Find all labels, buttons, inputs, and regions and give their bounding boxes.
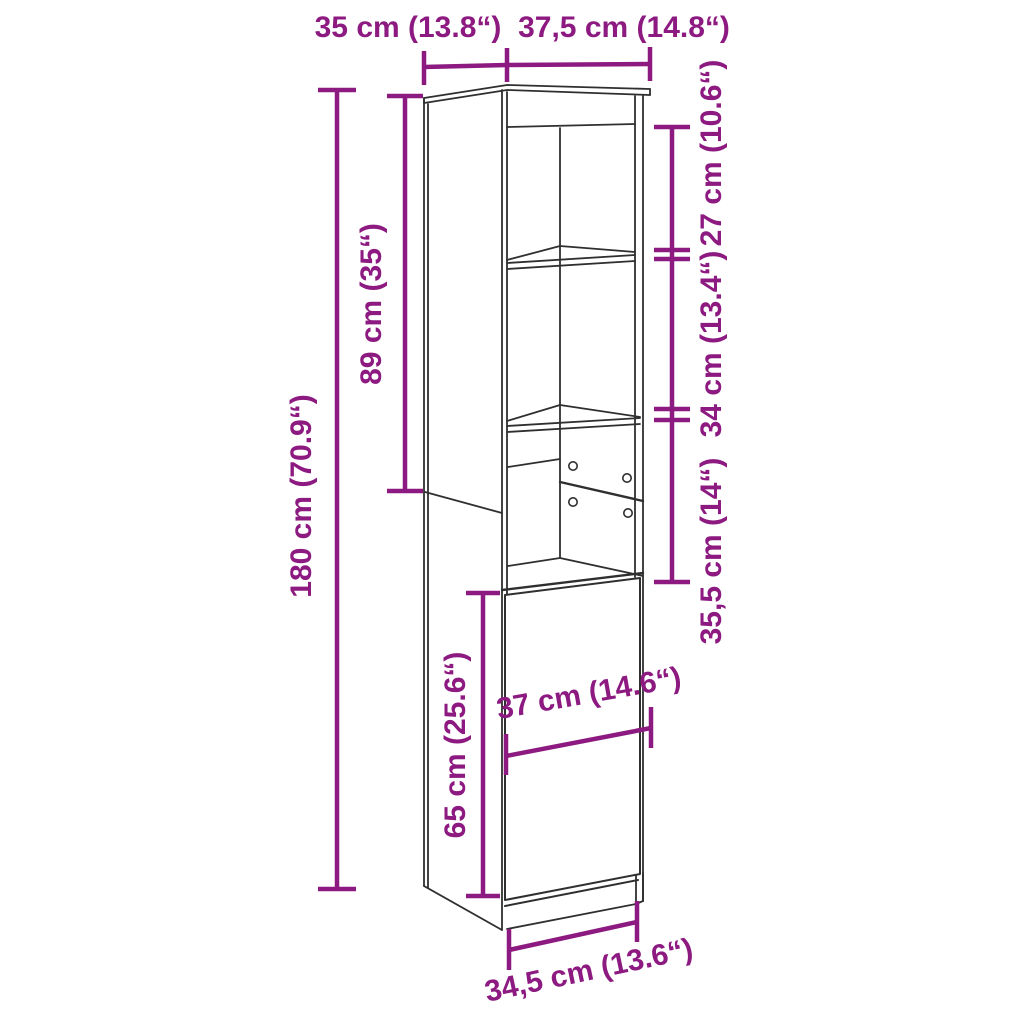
dim-label-compartment-3: 35,5 cm (14“) (695, 458, 729, 645)
dim-label-top-depth: 35 cm (13.8“) (315, 11, 502, 45)
hole-icon (569, 498, 577, 506)
lower-unit-top (502, 558, 643, 590)
dim-line-top (424, 47, 650, 85)
dim-line-upper-height (387, 96, 423, 491)
dim-label-total-height: 180 cm (70.9“) (285, 394, 319, 597)
cabinet-top-rail (507, 124, 635, 127)
cabinet-top-panel (424, 85, 650, 103)
back-panel-holes (569, 462, 632, 517)
dim-label-top-width: 37,5 cm (14.8“) (518, 11, 730, 45)
dim-line-compartments (654, 127, 690, 582)
hole-icon (624, 509, 632, 517)
shelf-2 (507, 405, 640, 432)
dim-label-upper-height: 89 cm (35“) (355, 223, 389, 385)
dim-label-door-height: 65 cm (25.6“) (439, 652, 473, 839)
hole-icon (623, 474, 631, 482)
cabinet-drawing (0, 0, 1024, 1024)
shelf-1 (507, 246, 635, 269)
dim-label-compartment-2: 34 cm (13.4“) (695, 251, 729, 438)
hole-icon (569, 462, 577, 470)
dim-line-total-height (318, 90, 356, 889)
dim-label-compartment-1: 27 cm (10.6“) (695, 60, 729, 247)
dimension-diagram: 35 cm (13.8“) 37,5 cm (14.8“) 180 cm (70… (0, 0, 1024, 1024)
